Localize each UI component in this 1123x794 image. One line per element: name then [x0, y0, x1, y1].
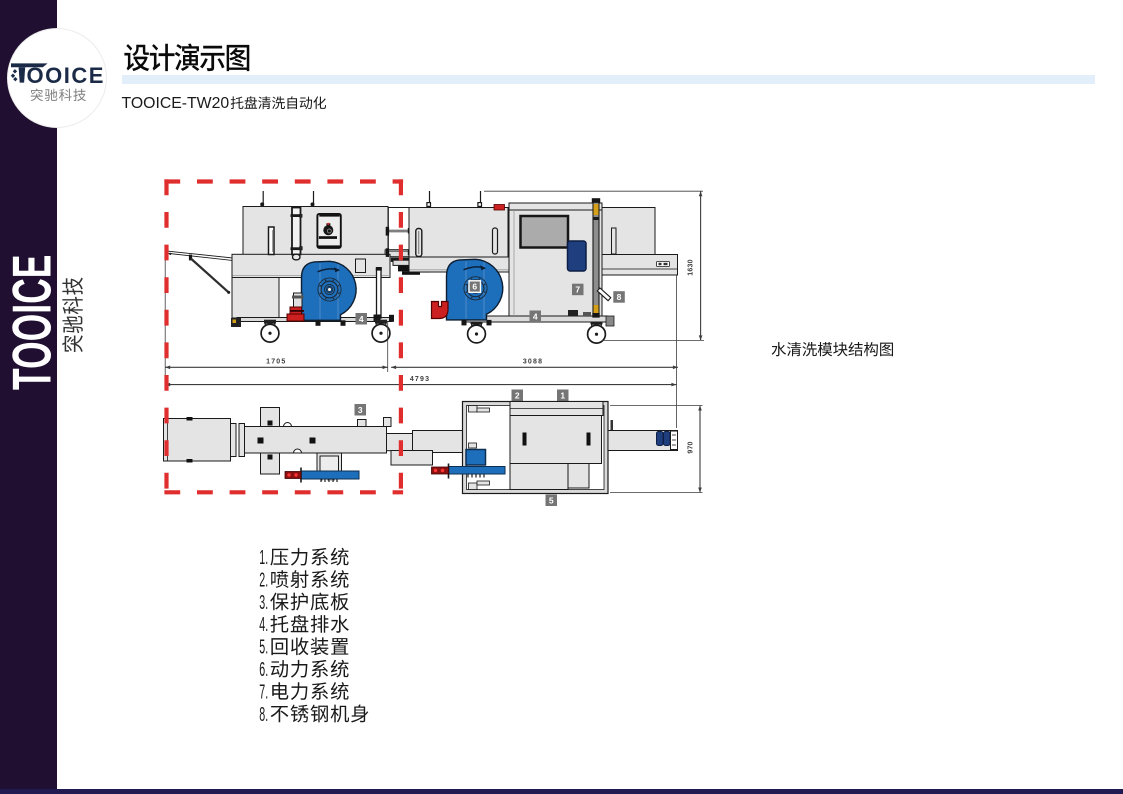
- svg-text:5: 5: [549, 495, 554, 505]
- svg-text:3088: 3088: [523, 359, 543, 366]
- svg-text:2: 2: [515, 390, 520, 400]
- svg-text:OOICE: OOICE: [27, 63, 105, 88]
- svg-text:7.: 7.: [259, 681, 268, 704]
- svg-text:970: 970: [688, 441, 695, 453]
- svg-text:4793: 4793: [410, 376, 430, 383]
- svg-text:5.: 5.: [259, 636, 268, 659]
- svg-text:TOOICE-TW20: TOOICE-TW20: [122, 95, 230, 112]
- svg-text:3.: 3.: [259, 591, 268, 614]
- svg-text:1: 1: [560, 390, 565, 400]
- svg-text:1.: 1.: [259, 546, 268, 569]
- svg-text:8.: 8.: [259, 703, 268, 726]
- svg-text:8: 8: [617, 292, 622, 302]
- svg-text:1705: 1705: [266, 359, 286, 366]
- svg-text:2.: 2.: [259, 569, 268, 592]
- svg-text:TOOICE: TOOICE: [1, 255, 63, 390]
- svg-text:4: 4: [533, 311, 538, 321]
- svg-text:4.: 4.: [259, 614, 268, 637]
- svg-text:6.: 6.: [259, 658, 268, 681]
- svg-text:3: 3: [358, 405, 363, 415]
- svg-text:6: 6: [472, 282, 477, 292]
- svg-text:7: 7: [575, 285, 580, 295]
- svg-text:1630: 1630: [688, 259, 695, 275]
- svg-text:4: 4: [359, 314, 364, 324]
